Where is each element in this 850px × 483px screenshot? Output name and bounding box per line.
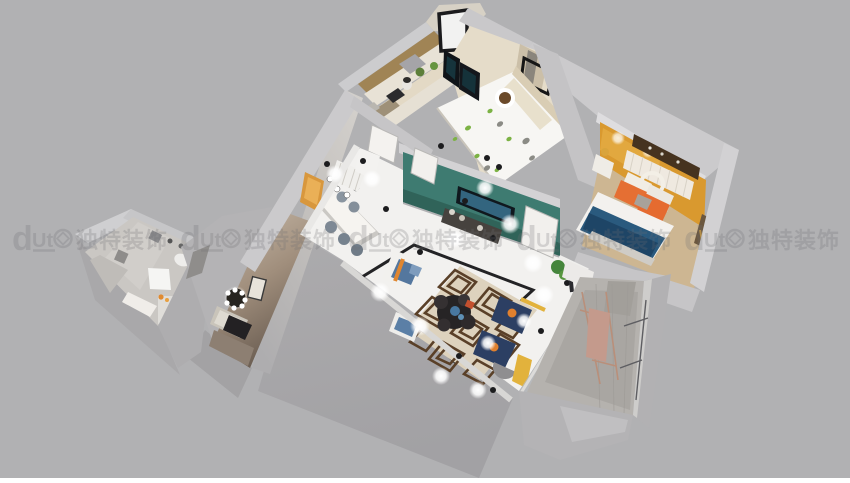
svg-text:独特装饰: 独特装饰: [76, 228, 168, 253]
svg-text:Ut: Ut: [32, 230, 53, 252]
svg-text:d: d: [12, 220, 33, 258]
